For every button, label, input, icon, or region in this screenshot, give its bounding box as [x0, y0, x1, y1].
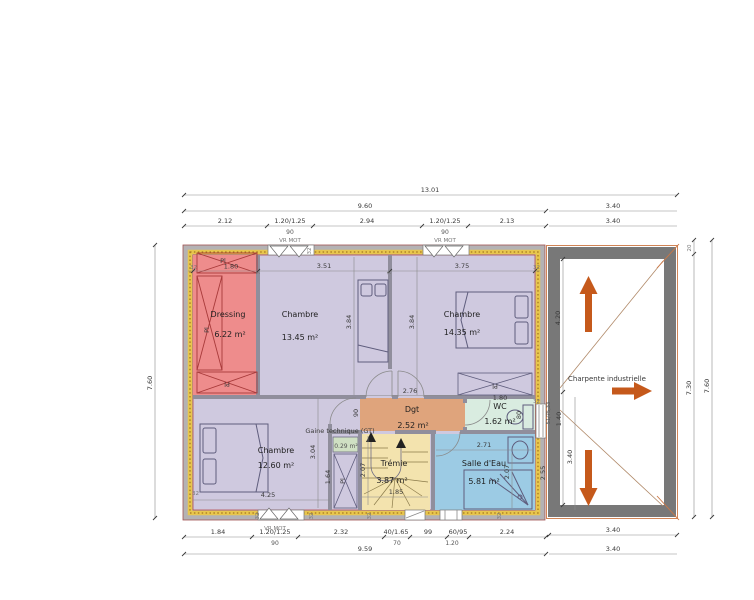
dim-ch2-h: 3.84 [408, 315, 416, 329]
closet-bottom-label: Pl [224, 380, 230, 388]
chambre3-area: 12.60 m² [258, 461, 294, 470]
dim-dgt-h: 90 [352, 409, 360, 417]
dim-wc-h: 80 [515, 411, 523, 419]
dim-bath-h: 2.07 [503, 465, 511, 479]
dim-bot-70: 70 [393, 540, 401, 547]
dressing-label: Dressing [211, 310, 246, 319]
stair-label: Trémie [380, 458, 408, 468]
closet-gt-label: Pl [339, 478, 347, 484]
room-stair [358, 434, 430, 510]
dim-ch3-h: 3.04 [309, 445, 317, 459]
dim-ch1-w: 3.51 [317, 262, 331, 270]
dim-gt-h: 1.64 [324, 470, 332, 484]
wall32-f: 32 [255, 513, 261, 520]
dim-annex-sill: 51/75,33 [546, 402, 552, 424]
dim-right-20: 20 [687, 244, 693, 251]
stair-area: 3.87 m² [376, 476, 407, 485]
dim-stair-h: 2.07 [359, 463, 367, 477]
wall7-b: 7 [387, 271, 393, 275]
gt-area: 0.29 m² [334, 443, 358, 450]
chambre3-label: Chambre [258, 446, 295, 455]
dim-top-90b: 90 [441, 229, 449, 236]
dim-bot-seg6: 60/95 [449, 528, 468, 536]
dim-bot-seg5: 99 [424, 528, 432, 536]
wall32-d: 32 [192, 491, 199, 497]
dims-right: 20 7.30 7.60 [685, 238, 714, 519]
dgt-area: 2.52 m² [397, 421, 428, 430]
wall32-e: 32 [307, 248, 313, 255]
dim-top-total: 13.01 [421, 186, 440, 194]
dims-bottom: VR MOT 1.84 1.20/1.25 2.32 40/1.65 99 60… [182, 526, 679, 556]
dim-ch1-h: 3.84 [345, 315, 353, 329]
dim-right-760: 7.60 [703, 379, 711, 393]
wall32-i: 32 [497, 513, 503, 520]
dim-bot-120: 1.20 [445, 540, 459, 547]
dim-wc-w: 1.80 [493, 394, 507, 402]
dim-ch2-w: 3.75 [455, 262, 469, 270]
wall32-b: 32 [533, 265, 540, 271]
dim-dressing-w: 1.80 [224, 263, 238, 271]
floor-plan-drawing: Dressing 6.22 m² Chambre 13.45 m² Chambr… [0, 0, 754, 600]
dims-left: 7.60 [146, 243, 157, 520]
dim-bot-seg2: 1.20/1.25 [259, 528, 290, 536]
dim-annex-420: 4.20 [554, 311, 562, 325]
dim-bath-w: 2.71 [477, 441, 491, 449]
dim-top-main: 9.60 [358, 202, 372, 210]
dim-top-annex-a: 3.40 [606, 202, 620, 210]
dim-annex-340: 3.40 [566, 450, 574, 464]
dim-annex-140: 1.40 [555, 412, 563, 426]
dim-top-seg4: 1.20/1.25 [429, 217, 460, 225]
vrmot-top-b: VR MOT [434, 238, 456, 244]
dressing-area: 6.22 m² [214, 330, 245, 339]
chambre2-label: Chambre [444, 310, 481, 319]
dim-right-730: 7.30 [685, 381, 693, 395]
dim-bot-seg4: 40/1.65 [384, 528, 409, 536]
closet-ch2-label: Pl [492, 382, 498, 390]
dim-top-seg3: 2.94 [360, 217, 374, 225]
annex: Charpente industrielle 4.20 3.40 1.40 51… [539, 244, 679, 520]
dim-left-total: 7.60 [146, 376, 154, 390]
dim-top-seg1: 2.12 [218, 217, 232, 225]
dim-bot-seg3: 2.32 [334, 528, 348, 536]
chambre1-label: Chambre [282, 310, 319, 319]
dim-bot-seg7: 2.24 [500, 528, 514, 536]
dim-bot-seg1: 1.84 [211, 528, 225, 536]
annex-label: Charpente industrielle [568, 375, 646, 383]
wc-area: 1.62 m² [484, 417, 515, 426]
floor-plan-page: Dressing 6.22 m² Chambre 13.45 m² Chambr… [0, 0, 754, 600]
chambre2-area: 14.35 m² [444, 328, 480, 337]
dim-ch3-w: 4.25 [261, 491, 275, 499]
dgt-label: Dgt [405, 405, 419, 414]
wall32-c: 32 [533, 399, 540, 405]
wall32-a: 32 [190, 265, 197, 271]
dim-bot-annex-a: 3.40 [606, 526, 620, 534]
dim-bot-annex-b: 3.40 [606, 545, 620, 553]
dim-bot-90: 90 [271, 540, 279, 547]
dim-bot-total: 9.59 [358, 545, 372, 553]
dim-top-seg5: 2.13 [500, 217, 514, 225]
dim-top-seg2: 1.20/1.25 [274, 217, 305, 225]
dim-top-90a: 90 [286, 229, 294, 236]
bath-label: Salle d'Eau [462, 459, 506, 468]
dims-top: 13.01 9.60 3.40 2.12 1.20/1.25 2.94 1.20… [182, 186, 679, 244]
vrmot-top-a: VR MOT [279, 238, 301, 244]
wall32-h: 32 [367, 513, 373, 520]
main-building: Dressing 6.22 m² Chambre 13.45 m² Chambr… [183, 245, 546, 520]
dim-annex-255: 2.55 [539, 466, 547, 480]
wall7-a: 7 [256, 271, 262, 275]
dim-top-annex-b: 3.40 [606, 217, 620, 225]
closet-left-label: Pl [203, 327, 211, 333]
dim-stair-w: 1.85 [389, 488, 403, 496]
chambre1-area: 13.45 m² [282, 333, 318, 342]
bath-area: 5.81 m² [468, 477, 499, 486]
dim-dgt-w: 2.76 [403, 387, 417, 395]
wall32-g: 32 [309, 513, 315, 520]
gt-label: Gaine technique (GT) [305, 427, 374, 435]
wc-label: WC [493, 402, 507, 411]
